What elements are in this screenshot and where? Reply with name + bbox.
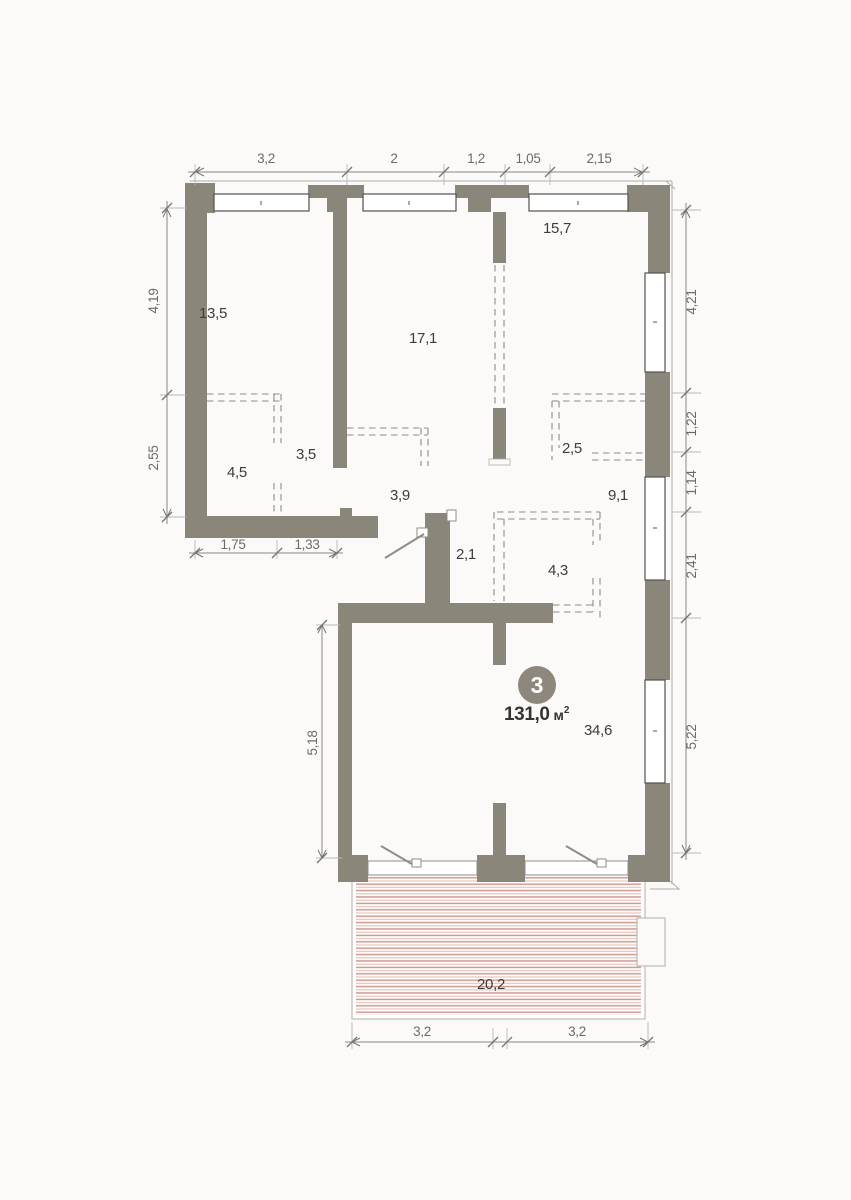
floorplan-page: 3,2 2 1,2 1,05 2,15 4,19 2,55 4,21 1,22 … bbox=[0, 0, 851, 1200]
wall-segment bbox=[493, 803, 506, 857]
door-frame bbox=[412, 859, 421, 867]
unit-area-exponent: 2 bbox=[564, 705, 570, 716]
dim-label: 1,22 bbox=[684, 411, 699, 436]
room-area-label: 17,1 bbox=[409, 330, 437, 347]
dashed-partition-middle bbox=[495, 265, 504, 406]
room-area-label: 4,3 bbox=[548, 562, 568, 579]
facade-chamfer-bottom-right bbox=[650, 881, 679, 889]
door-leaf-entry bbox=[385, 534, 424, 558]
unit-area-unit: м bbox=[554, 707, 564, 723]
room-area-label: 15,7 bbox=[543, 220, 571, 237]
room-area-label: 9,1 bbox=[608, 487, 628, 504]
room-area-label: 2,5 bbox=[562, 440, 582, 457]
wall-segment bbox=[645, 580, 670, 680]
dim-label: 1,14 bbox=[684, 470, 699, 496]
dim-label: 3,2 bbox=[257, 151, 275, 166]
wall-segment bbox=[338, 855, 368, 882]
dim-label: 1,33 bbox=[294, 537, 319, 552]
dim-label: 2,55 bbox=[146, 445, 161, 470]
terrace-area bbox=[352, 866, 665, 1019]
dashed-closet-hall bbox=[347, 428, 428, 466]
unit-total-area: 131,0м2 bbox=[504, 704, 570, 725]
dashed-wardrobe bbox=[494, 512, 600, 618]
wall-segment bbox=[425, 513, 450, 608]
wall-segment bbox=[645, 372, 670, 477]
door-frame bbox=[597, 859, 606, 867]
room-area-label: 3,9 bbox=[390, 487, 410, 504]
unit-number: 3 bbox=[531, 672, 544, 698]
wall-segment bbox=[338, 603, 553, 623]
dim-label: 5,18 bbox=[305, 730, 320, 755]
dim-label: 3,2 bbox=[413, 1024, 431, 1039]
wall-segment bbox=[648, 185, 670, 273]
dim-label: 1,75 bbox=[220, 537, 245, 552]
wall-segment bbox=[477, 855, 525, 882]
dim-label: 1,2 bbox=[467, 151, 485, 166]
dim-label: 5,22 bbox=[684, 724, 699, 749]
wall-segment bbox=[628, 855, 670, 882]
door-opening-band bbox=[525, 861, 628, 875]
room-area-label: 2,1 bbox=[456, 546, 476, 563]
room-area-label: 20,2 bbox=[477, 976, 505, 993]
wall-segment bbox=[493, 212, 506, 263]
dim-label: 4,19 bbox=[146, 288, 161, 313]
dim-label: 4,21 bbox=[684, 289, 699, 314]
dim-label: 1,05 bbox=[515, 151, 540, 166]
dim-label: 2 bbox=[390, 151, 397, 166]
room-area-label: 3,5 bbox=[296, 446, 316, 463]
unit-badge: 3 131,0м2 bbox=[504, 666, 570, 725]
wall-segment bbox=[340, 508, 352, 517]
room-area-label: 13,5 bbox=[199, 305, 227, 322]
door-frame bbox=[447, 510, 456, 521]
wall-segment bbox=[327, 196, 347, 212]
wall-segment bbox=[338, 603, 352, 857]
room-area-label: 34,6 bbox=[584, 722, 612, 739]
window-mullion-ticks bbox=[261, 201, 657, 731]
dashed-closet-left bbox=[207, 394, 282, 514]
dim-label: 3,2 bbox=[568, 1024, 586, 1039]
unit-area-value: 131,0 bbox=[504, 704, 550, 725]
dim-label: 2,15 bbox=[586, 151, 611, 166]
wall-segment bbox=[333, 212, 347, 468]
wall-segment bbox=[185, 516, 378, 538]
wall-segment bbox=[468, 196, 491, 212]
wall-segment bbox=[185, 183, 207, 538]
dim-label: 2,41 bbox=[684, 553, 699, 578]
door-opening-band bbox=[368, 861, 477, 875]
wall-segment bbox=[493, 408, 506, 459]
wall-segment bbox=[455, 185, 529, 198]
terrace-equipment-box bbox=[637, 918, 665, 966]
wall-segment bbox=[493, 623, 506, 665]
room-area-label: 4,5 bbox=[227, 464, 247, 481]
windows bbox=[214, 194, 665, 783]
terrace-hatch bbox=[356, 872, 641, 1015]
wall-end-cap bbox=[489, 459, 510, 465]
floorplan-drawing: 3,2 2 1,2 1,05 2,15 4,19 2,55 4,21 1,22 … bbox=[0, 0, 851, 1200]
